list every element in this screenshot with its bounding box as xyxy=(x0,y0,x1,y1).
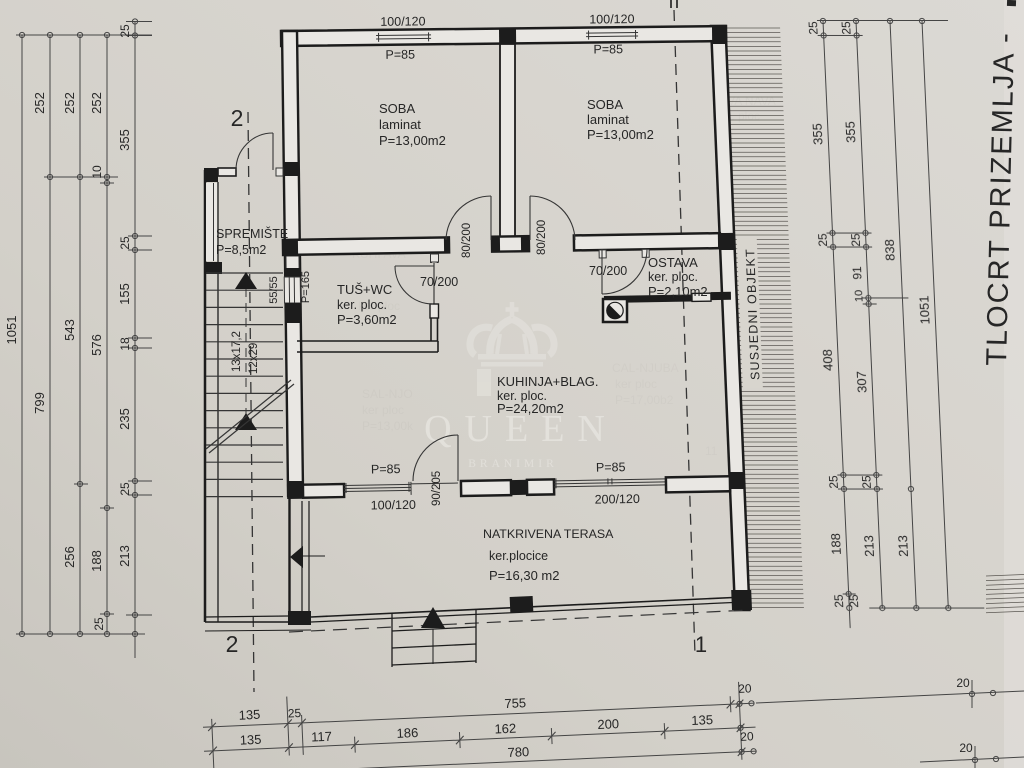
svg-text:307: 307 xyxy=(854,371,870,393)
svg-text:70/200: 70/200 xyxy=(589,264,627,278)
svg-text:P=8,5m2: P=8,5m2 xyxy=(216,243,266,257)
svg-text:KUHINJA+BLAG.: KUHINJA+BLAG. xyxy=(497,374,599,389)
svg-text:ker ploc: ker ploc xyxy=(615,377,657,391)
svg-text:355: 355 xyxy=(842,121,858,143)
svg-text:P=165: P=165 xyxy=(300,271,312,303)
svg-text:213: 213 xyxy=(895,535,911,557)
svg-text:80/200: 80/200 xyxy=(461,223,473,258)
svg-text:80/200: 80/200 xyxy=(536,220,548,255)
svg-text:91: 91 xyxy=(850,266,865,280)
svg-text:355: 355 xyxy=(810,123,826,145)
svg-text:20: 20 xyxy=(959,741,973,755)
svg-text:11: 11 xyxy=(705,444,718,458)
svg-text:799: 799 xyxy=(32,392,47,414)
svg-text:BRANIMIR: BRANIMIR xyxy=(468,458,558,470)
svg-text:188: 188 xyxy=(89,550,104,572)
svg-text:10: 10 xyxy=(90,165,104,179)
svg-text:135: 135 xyxy=(239,732,261,748)
svg-text:755: 755 xyxy=(504,695,526,711)
svg-text:25: 25 xyxy=(832,594,847,608)
svg-text:CAL-NJUBA: CAL-NJUBA xyxy=(612,361,679,375)
svg-text:P=85: P=85 xyxy=(596,460,626,475)
svg-text:OSTAVA: OSTAVA xyxy=(648,255,698,270)
svg-text:70/200: 70/200 xyxy=(420,275,458,289)
svg-text:P=85: P=85 xyxy=(593,42,623,56)
svg-text:186: 186 xyxy=(396,725,418,741)
svg-text:25: 25 xyxy=(288,706,302,721)
svg-text:25: 25 xyxy=(92,617,106,631)
svg-text:P=13,00m2: P=13,00m2 xyxy=(587,127,654,142)
svg-text:ker. ploc.: ker. ploc. xyxy=(648,270,698,284)
svg-text:TUŠ+WC: TUŠ+WC xyxy=(337,282,392,297)
svg-text:90/205: 90/205 xyxy=(431,471,443,506)
svg-text:1: 1 xyxy=(695,632,707,657)
svg-text:252: 252 xyxy=(32,92,47,114)
svg-text:ker. ploc.: ker. ploc. xyxy=(337,298,387,312)
svg-text:838: 838 xyxy=(882,239,898,261)
svg-text:1051: 1051 xyxy=(4,316,19,345)
svg-text:256: 256 xyxy=(62,546,77,568)
svg-text:1051: 1051 xyxy=(916,296,932,325)
svg-text:P=16,30 m2: P=16,30 m2 xyxy=(489,568,559,583)
svg-text:25: 25 xyxy=(118,236,132,250)
svg-text:ker ploc: ker ploc xyxy=(362,403,404,417)
svg-text:162: 162 xyxy=(494,721,516,737)
svg-text:20: 20 xyxy=(956,676,970,690)
svg-text:117: 117 xyxy=(311,729,332,745)
svg-text:ker.plocice: ker.plocice xyxy=(489,549,548,563)
svg-text:252: 252 xyxy=(89,92,104,114)
svg-text:25: 25 xyxy=(826,475,841,489)
svg-text:25: 25 xyxy=(816,233,831,247)
svg-text:408: 408 xyxy=(820,349,836,371)
svg-text:25: 25 xyxy=(806,21,821,35)
svg-text:P=3,60m2: P=3,60m2 xyxy=(337,312,397,327)
svg-text:NATKRIVENA TERASA: NATKRIVENA TERASA xyxy=(483,527,614,541)
svg-text:100/120: 100/120 xyxy=(380,14,425,29)
svg-text:100/120: 100/120 xyxy=(371,498,416,513)
svg-text:25: 25 xyxy=(118,24,132,38)
svg-text:200/120: 200/120 xyxy=(595,492,640,507)
svg-text:laminat: laminat xyxy=(587,112,629,127)
svg-text:P=2,10m2: P=2,10m2 xyxy=(648,284,708,299)
svg-text:252: 252 xyxy=(62,92,77,114)
svg-text:13x17,2: 13x17,2 xyxy=(231,331,243,372)
svg-text:135: 135 xyxy=(691,712,713,728)
svg-text:P=13,00k: P=13,00k xyxy=(362,419,414,433)
svg-text:543: 543 xyxy=(62,319,77,341)
svg-text:SOBA: SOBA xyxy=(379,101,415,116)
svg-text:2: 2 xyxy=(226,631,239,657)
svg-text:155: 155 xyxy=(117,283,132,305)
svg-text:P=13,00m2: P=13,00m2 xyxy=(379,133,446,148)
svg-text:SOBA: SOBA xyxy=(587,97,623,112)
svg-text:SPREMIŠTE: SPREMIŠTE xyxy=(216,226,288,241)
svg-text:25: 25 xyxy=(849,233,864,247)
svg-text:20: 20 xyxy=(738,681,752,696)
svg-text:2: 2 xyxy=(231,105,244,131)
svg-text:188: 188 xyxy=(828,533,844,555)
svg-text:P=24,20m2: P=24,20m2 xyxy=(497,401,564,416)
svg-text:25: 25 xyxy=(118,482,132,496)
svg-text:213: 213 xyxy=(861,535,877,557)
svg-text:laminat: laminat xyxy=(379,117,421,132)
svg-text:355: 355 xyxy=(117,129,132,151)
svg-text:SAL-NJO: SAL-NJO xyxy=(362,387,413,401)
svg-text:135: 135 xyxy=(238,707,260,723)
svg-text:100/120: 100/120 xyxy=(589,12,634,27)
svg-text:200: 200 xyxy=(597,716,619,732)
svg-text:P=17,00b2: P=17,00b2 xyxy=(615,393,674,407)
svg-text:25: 25 xyxy=(859,475,874,489)
svg-text:780: 780 xyxy=(507,744,529,760)
svg-text:P=85: P=85 xyxy=(371,462,401,477)
svg-text:18: 18 xyxy=(118,337,132,351)
svg-text:P=85: P=85 xyxy=(385,48,415,62)
svg-text:25: 25 xyxy=(839,21,854,35)
svg-text:213: 213 xyxy=(117,545,132,567)
svg-text:576: 576 xyxy=(89,334,104,356)
svg-text:10: 10 xyxy=(853,290,866,302)
svg-text:235: 235 xyxy=(117,408,132,430)
svg-text:25: 25 xyxy=(847,594,862,608)
svg-text:12x29: 12x29 xyxy=(248,343,260,374)
svg-text:20: 20 xyxy=(740,729,754,744)
